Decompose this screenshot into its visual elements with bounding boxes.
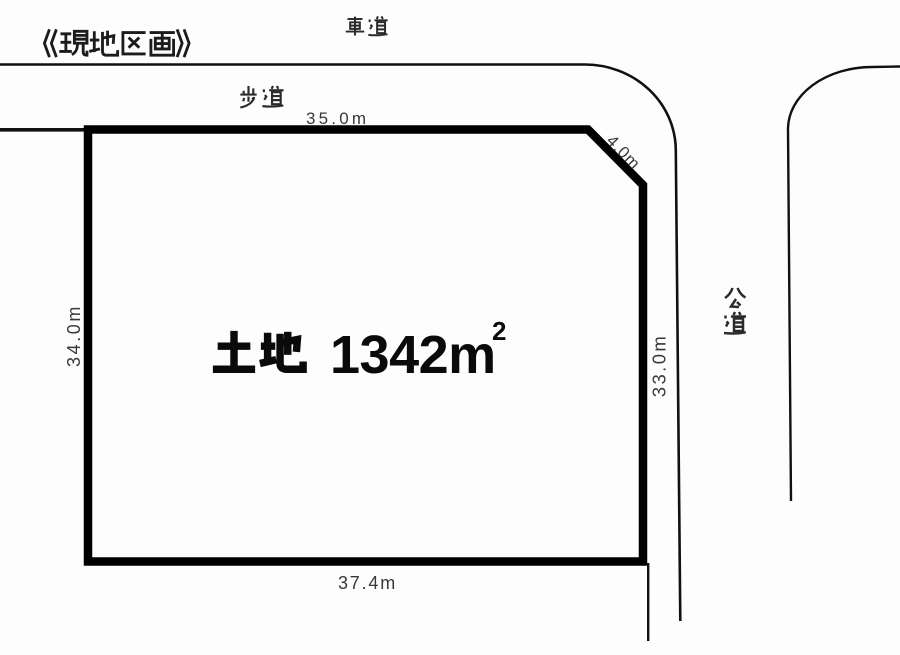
svg-text:33.0m: 33.0m	[649, 334, 670, 397]
svg-text:1342m: 1342m	[330, 325, 496, 385]
svg-text:2: 2	[492, 316, 506, 346]
svg-text:37.4m: 37.4m	[338, 573, 397, 593]
svg-text:35.0m: 35.0m	[306, 109, 369, 128]
svg-text:34.0m: 34.0m	[64, 304, 84, 367]
